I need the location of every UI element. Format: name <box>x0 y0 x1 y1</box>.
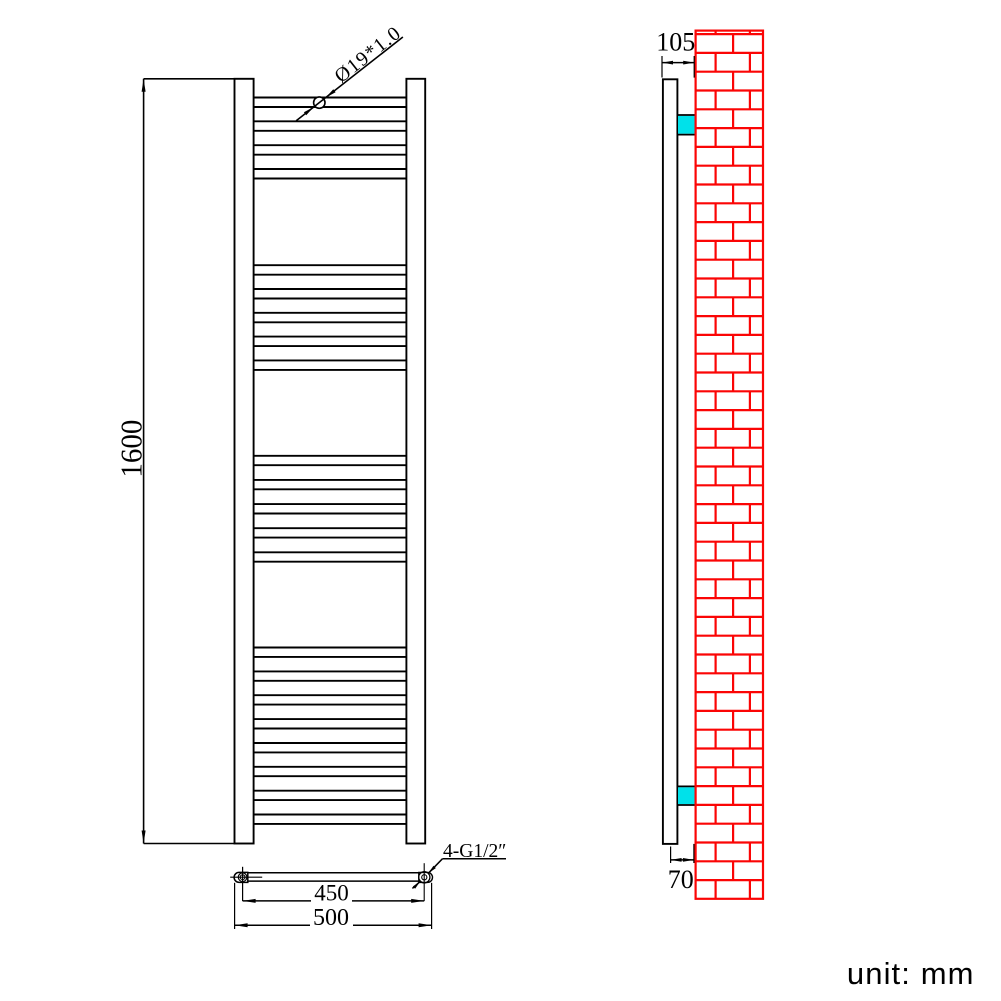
svg-text:450: 450 <box>314 881 349 906</box>
svg-text:unit: mm: unit: mm <box>847 956 975 991</box>
svg-text:1600: 1600 <box>113 420 148 478</box>
svg-text:500: 500 <box>313 905 349 931</box>
svg-text:70: 70 <box>668 865 694 894</box>
svg-text:105: 105 <box>656 28 695 57</box>
